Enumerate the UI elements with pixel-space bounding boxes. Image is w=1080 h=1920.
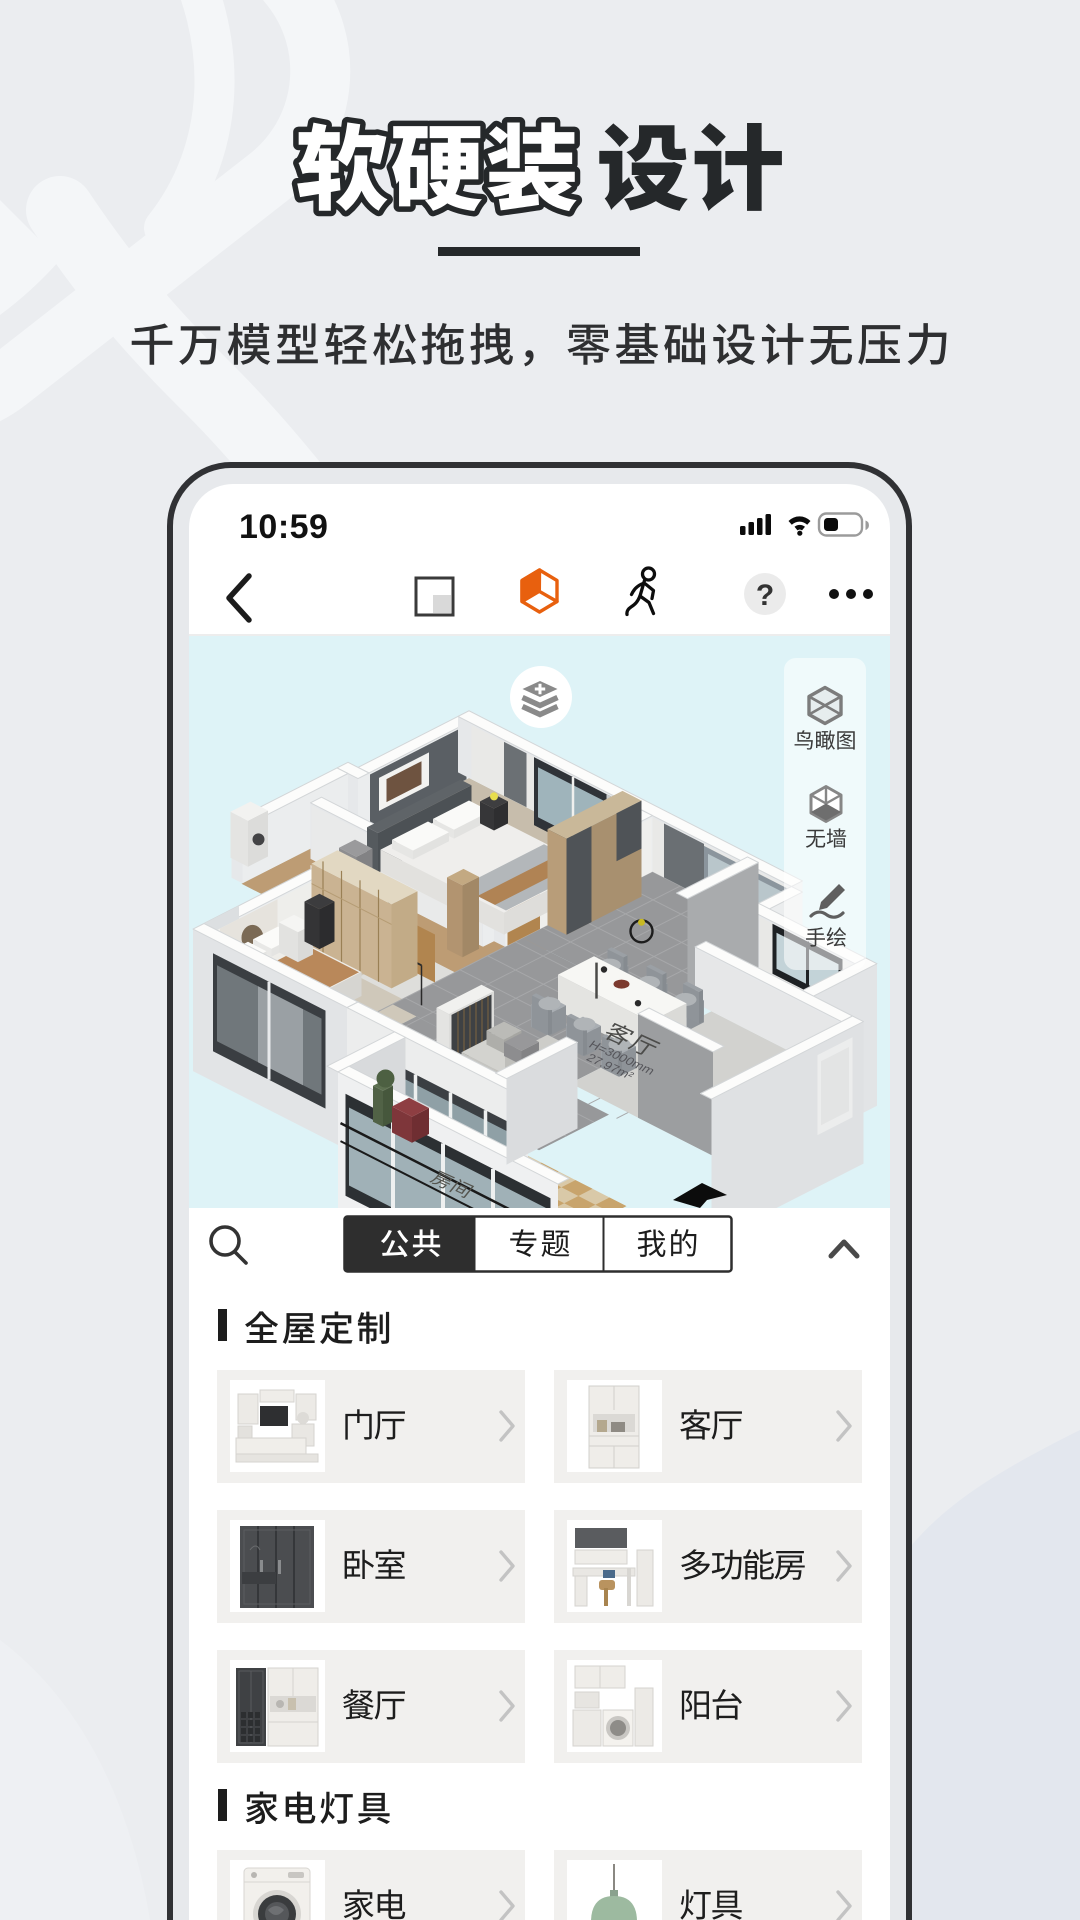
svg-text:?: ?	[756, 579, 774, 612]
